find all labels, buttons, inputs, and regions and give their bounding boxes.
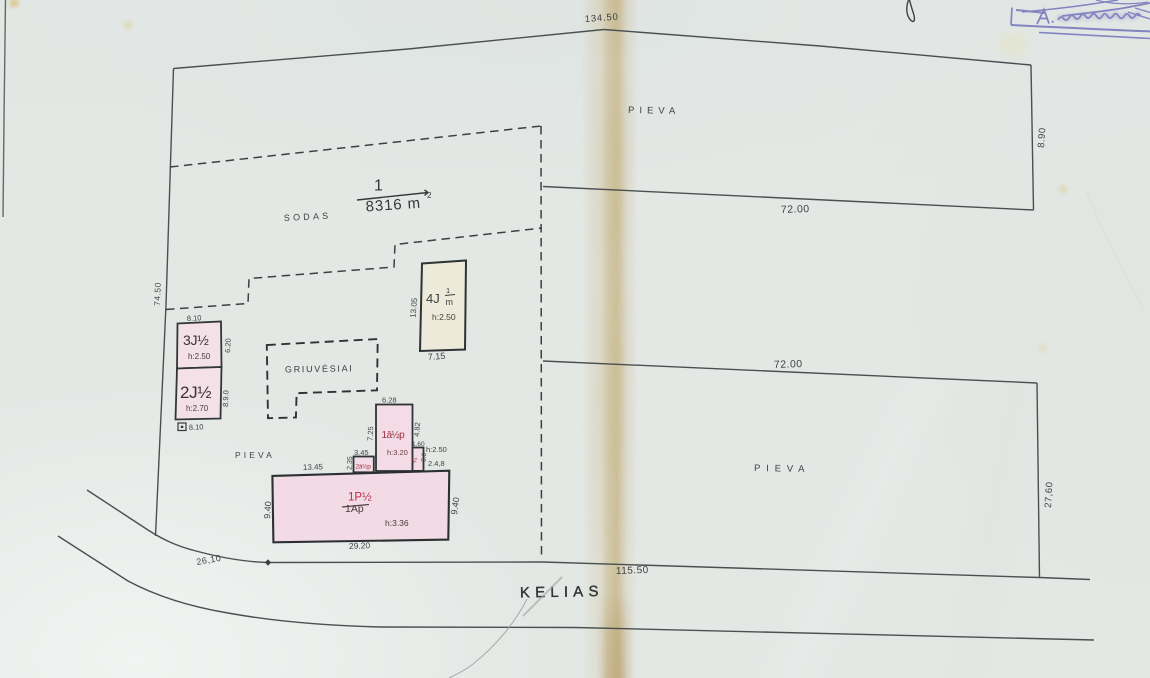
svg-text:7.25: 7.25 — [366, 426, 376, 441]
svg-text:2.35: 2.35 — [347, 456, 355, 470]
svg-text:74.50: 74.50 — [152, 282, 163, 306]
svg-text:1P½: 1P½ — [348, 492, 372, 504]
svg-text:4.82: 4.82 — [412, 422, 422, 437]
svg-text:h:3.20: h:3.20 — [387, 448, 408, 457]
svg-text:h:3.36: h:3.36 — [385, 518, 409, 528]
svg-text:3.45: 3.45 — [354, 448, 369, 457]
svg-text:72.00: 72.00 — [774, 358, 803, 371]
svg-text:72.00: 72.00 — [781, 203, 810, 216]
svg-text:6.28: 6.28 — [382, 396, 397, 405]
svg-text:1.60: 1.60 — [412, 441, 425, 448]
svg-text:7.15: 7.15 — [427, 351, 445, 362]
svg-text:8316 m: 8316 m — [365, 195, 421, 216]
svg-text:1ā½p: 1ā½p — [382, 430, 406, 441]
svg-text:PIEVA: PIEVA — [754, 463, 810, 475]
svg-text:8.90: 8.90 — [1036, 127, 1048, 148]
svg-text:9.40: 9.40 — [262, 501, 273, 519]
svg-text:8.9.0: 8.9.0 — [221, 390, 231, 407]
svg-text:GRIUVĖSIAI: GRIUVĖSIAI — [285, 363, 354, 374]
svg-text:13.45: 13.45 — [303, 462, 324, 472]
svg-text:6.20: 6.20 — [223, 338, 233, 353]
svg-text:134.50: 134.50 — [584, 12, 619, 25]
svg-text:3J½: 3J½ — [183, 332, 209, 348]
svg-text:m: m — [446, 297, 454, 307]
svg-text:29.20: 29.20 — [349, 540, 371, 551]
svg-text:1Ap: 1Ap — [345, 503, 364, 515]
svg-text:8.10: 8.10 — [187, 313, 202, 323]
svg-text:26,10: 26,10 — [196, 553, 222, 567]
svg-text:KELIAS: KELIAS — [520, 583, 604, 601]
svg-text:PIEVA: PIEVA — [628, 105, 680, 117]
svg-text:2: 2 — [427, 191, 432, 200]
svg-text:8.10: 8.10 — [189, 422, 204, 432]
svg-text:1: 1 — [374, 178, 383, 195]
svg-text:115.50: 115.50 — [616, 565, 649, 577]
svg-text:2.4,8: 2.4,8 — [428, 459, 445, 468]
svg-text:h:2.70: h:2.70 — [186, 404, 209, 413]
svg-text:1: 1 — [446, 286, 450, 295]
svg-text:9.40: 9.40 — [449, 497, 461, 516]
svg-text:PIEVA: PIEVA — [235, 450, 275, 460]
svg-text:h:2.50: h:2.50 — [432, 312, 456, 322]
svg-text:h:2.50: h:2.50 — [188, 352, 211, 361]
svg-text:¾: ¾ — [411, 457, 419, 464]
svg-text:2J½: 2J½ — [180, 383, 211, 402]
svg-text:27,60: 27,60 — [1043, 481, 1055, 508]
svg-text:2ā½p: 2ā½p — [356, 463, 372, 471]
svg-text:h:2.50: h:2.50 — [426, 445, 447, 454]
svg-text:3.0: 3.0 — [421, 452, 429, 462]
svg-text:13.05: 13.05 — [409, 297, 420, 318]
svg-text:SODAS: SODAS — [284, 211, 332, 223]
svg-text:4J: 4J — [426, 291, 440, 306]
